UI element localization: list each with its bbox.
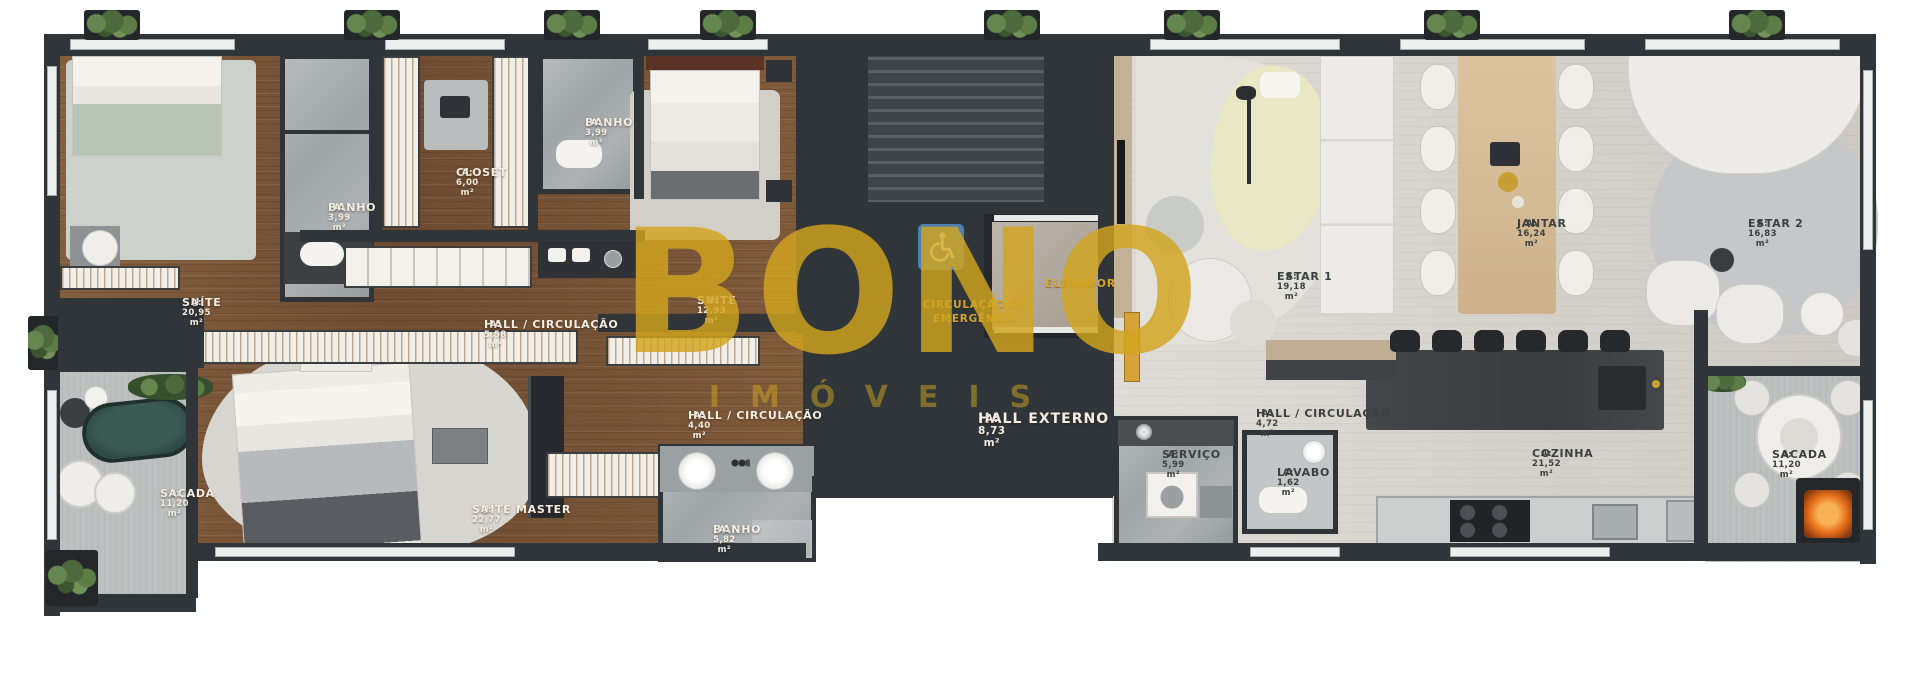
window — [70, 39, 235, 50]
towel — [548, 248, 566, 262]
planter — [28, 316, 58, 370]
wall-hall-north — [300, 230, 645, 242]
master-bed — [232, 362, 422, 559]
window — [1400, 39, 1585, 50]
window — [1250, 547, 1340, 557]
floor-plan: SUÍTE A: 20,95 m² BANHO A: 3,99 m² CLOSE… — [0, 0, 1920, 676]
window — [1645, 39, 1840, 50]
round-sink — [1302, 440, 1326, 464]
planter — [544, 10, 600, 40]
dining-chair — [1420, 126, 1456, 172]
closet-wardrobe-left — [382, 56, 420, 228]
planter — [344, 10, 400, 40]
balcony-chair — [1734, 472, 1770, 508]
master-nightstand — [432, 428, 488, 464]
sideboard-front — [1266, 360, 1396, 380]
wall-banho2-east — [634, 54, 644, 199]
suite1-radiator — [60, 266, 180, 290]
window — [47, 66, 57, 196]
wall-top — [44, 34, 1870, 56]
gold-vase — [1498, 172, 1518, 192]
floor-lamp-head — [1236, 86, 1256, 100]
cooktop — [1450, 500, 1530, 542]
master-shoe-rack — [546, 452, 660, 498]
wall-core-south — [812, 476, 1112, 496]
closet-tray — [440, 96, 470, 118]
dining-chair — [1420, 188, 1456, 234]
wall-right-balcony-north — [1694, 366, 1872, 376]
dining-chair — [1420, 250, 1456, 296]
wall-suite1-south — [44, 298, 204, 368]
window — [1150, 39, 1340, 50]
wall-closet-east — [528, 54, 538, 234]
window — [47, 390, 57, 540]
wall-kitchen-east — [1694, 310, 1708, 550]
suite1-pouf — [82, 230, 118, 266]
window — [648, 39, 768, 50]
suite2-headboard — [646, 54, 764, 70]
brand-watermark: BONO — [620, 198, 1100, 388]
dining-chair — [1420, 64, 1456, 110]
planter — [700, 10, 756, 40]
bar-stool — [1390, 330, 1420, 352]
suite2-nightstand — [766, 60, 792, 82]
table-plate — [1512, 196, 1524, 208]
window — [1863, 400, 1873, 530]
island-sink — [1598, 366, 1646, 410]
side-table — [1710, 248, 1734, 272]
pouf — [94, 472, 136, 514]
laundry-sink — [1136, 424, 1152, 440]
planter — [1164, 10, 1220, 40]
hall-sideboard — [344, 246, 532, 288]
bar-stool — [1558, 330, 1588, 352]
planter — [84, 10, 140, 40]
window — [1863, 70, 1873, 250]
window — [1450, 547, 1610, 557]
wall-balcony-north — [44, 360, 194, 372]
towel — [572, 248, 590, 262]
dining-chair — [1558, 126, 1594, 172]
armchair — [1646, 260, 1720, 326]
toiletries — [730, 456, 750, 470]
gold-faucet — [1652, 380, 1660, 388]
kitchen-counter — [1376, 496, 1708, 546]
planter — [1729, 10, 1785, 40]
planter — [46, 550, 98, 606]
bar-stool — [1600, 330, 1630, 352]
bar-stool — [1474, 330, 1504, 352]
planter — [1424, 10, 1480, 40]
grill-fire — [1804, 490, 1852, 538]
brand-watermark-sub: IMÓVEIS — [640, 380, 1100, 415]
balcony-plant — [128, 374, 213, 400]
bathroom1-toilet — [300, 242, 344, 266]
sideboard-top — [1266, 340, 1396, 360]
round-sink — [756, 452, 794, 490]
dining-chair — [1558, 250, 1594, 296]
floor-lamp — [1247, 96, 1251, 184]
bar-stool — [1516, 330, 1546, 352]
ottoman — [1800, 292, 1844, 336]
suite2-bed — [650, 70, 760, 200]
master-closet-rack — [196, 330, 578, 364]
table-tray — [1490, 142, 1520, 166]
closet-wardrobe-right — [492, 56, 530, 228]
wall-balcony-east — [186, 368, 198, 598]
suite1-bed — [72, 56, 222, 156]
laundry-shelf — [1200, 486, 1232, 518]
round-sink — [678, 452, 716, 490]
planter — [984, 10, 1040, 40]
emergency-stairs — [868, 44, 1044, 202]
bathroom1-partition — [284, 130, 370, 134]
counter-sink — [1592, 504, 1638, 540]
bar-stool — [1432, 330, 1462, 352]
window — [385, 39, 505, 50]
armchair — [1716, 284, 1784, 344]
window — [215, 547, 515, 557]
cushion — [1260, 72, 1300, 98]
dining-chair — [1558, 64, 1594, 110]
